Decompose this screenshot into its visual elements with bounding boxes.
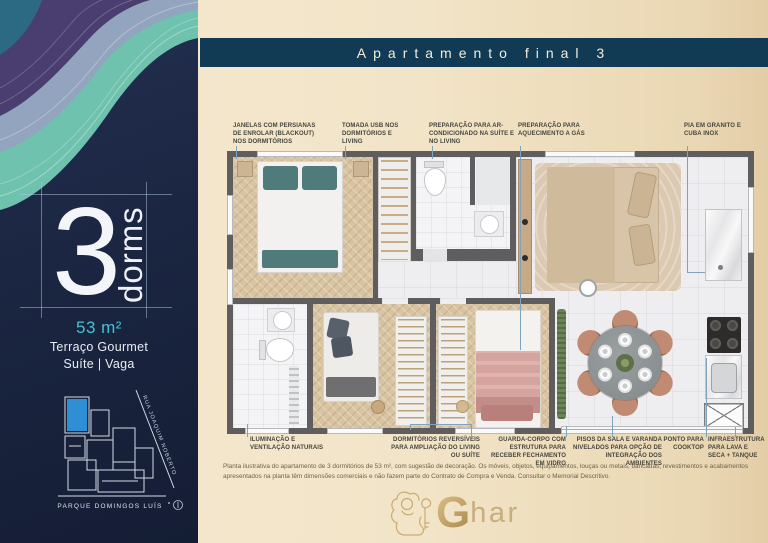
frame-line-left	[41, 182, 42, 318]
leader-line	[706, 358, 707, 437]
pillow	[263, 166, 298, 190]
leader-line	[566, 426, 567, 437]
callout-reversible-bedrooms: DORMITÓRIOS REVERSÍVEIS PARA AMPLIAÇÃO D…	[383, 437, 480, 461]
toilet-tank	[259, 340, 266, 360]
callout-usb-outlet: TOMADA USB NOS DORMITÓRIOS E LIVING	[342, 123, 406, 147]
leader-line	[410, 424, 472, 425]
leader-line	[432, 146, 433, 159]
burner	[727, 320, 738, 331]
leader-line	[520, 146, 521, 350]
logo-wordmark: har	[470, 499, 519, 528]
toilet	[424, 168, 446, 196]
leader-line	[345, 146, 346, 159]
area-label: 53 m²	[0, 318, 198, 338]
callout-laundry-infrastructure: INFRAESTRUTURA PARA LAVA E SECA + TANQUE	[708, 437, 762, 461]
window	[245, 428, 289, 434]
sink	[273, 311, 292, 330]
leader-line	[410, 424, 411, 430]
pink-blanket	[476, 351, 540, 397]
planter-hedge	[557, 309, 566, 419]
window	[257, 151, 343, 157]
brochure-page: { "header": { "title": "Apartamento fina…	[0, 0, 768, 543]
map-street-label: RUA JOAQUIM NOBERTO	[141, 395, 177, 477]
stool	[456, 400, 469, 413]
room-bathroom-2	[233, 304, 307, 428]
wardrobe	[395, 316, 427, 426]
sink-counter	[267, 308, 295, 332]
sink	[480, 215, 499, 234]
side-table	[371, 400, 385, 414]
callout-cooktop-point: PONTO PARA COOKTOP	[660, 437, 704, 453]
leader-line	[612, 416, 613, 437]
compass-icon	[168, 501, 182, 510]
shower-partition	[470, 157, 475, 205]
suite-blanket	[547, 167, 615, 283]
window	[327, 428, 383, 434]
door-opening	[423, 249, 447, 261]
feature-suite-vaga: Suíte | Vaga	[0, 357, 198, 371]
site-map: RUA JOAQUIM NOBERTO PARQUE DOMINGOS LUÍS	[38, 388, 190, 516]
kitchen-sink	[711, 363, 737, 393]
leader-line	[687, 146, 688, 272]
legal-disclaimer: Planta ilustrativa do apartamento de 3 d…	[223, 462, 760, 482]
dorms-label: dorms	[112, 203, 150, 303]
pillow	[302, 166, 337, 190]
callout-natural-light: ILUMINAÇÃO E VENTILAÇÃO NATURAIS	[250, 437, 332, 453]
lion-key-icon	[388, 487, 434, 539]
page-title: Apartamento final 3	[357, 45, 611, 61]
dorms-count: 3	[52, 200, 121, 305]
room-bedroom-3	[436, 304, 549, 428]
decor-item	[522, 219, 528, 225]
callout-gas-heating: PREPARAÇÃO PARA AQUECIMENTO A GÁS	[518, 123, 592, 139]
window	[227, 269, 233, 305]
pillow	[628, 224, 656, 267]
cooktop	[707, 317, 741, 353]
suite-bed	[547, 167, 659, 283]
leader-line	[236, 146, 237, 159]
glass-guardrail	[561, 426, 743, 434]
laundry-tank	[704, 403, 744, 428]
burner	[710, 320, 721, 331]
side-table	[579, 279, 597, 297]
window	[748, 187, 754, 253]
map-park-label: PARQUE DOMINGOS LUÍS	[57, 501, 162, 510]
leader-line	[735, 427, 736, 437]
counter-with-sink	[705, 355, 742, 399]
floor-plan	[227, 151, 754, 434]
pillow	[627, 171, 658, 219]
leader-line	[471, 424, 472, 437]
title-bar: Apartamento final 3	[200, 38, 768, 67]
nightstand	[237, 161, 253, 177]
granite-counter-sink	[705, 209, 742, 281]
decor-item	[522, 255, 528, 261]
window	[545, 151, 635, 157]
plate	[618, 379, 632, 393]
room-bedroom-1	[233, 157, 373, 298]
nightstand	[353, 161, 369, 177]
toilet-tank	[424, 161, 444, 168]
faucet	[718, 265, 723, 270]
brand-logo: G har	[388, 486, 588, 540]
blanket	[326, 377, 376, 397]
leader-line	[247, 424, 248, 437]
burner	[727, 338, 738, 349]
single-bed	[475, 310, 541, 428]
plate	[618, 333, 632, 347]
shower-area	[476, 157, 510, 205]
sink-counter	[474, 211, 504, 237]
map-highlighted-unit	[67, 399, 87, 431]
daybed-sofa	[323, 312, 379, 402]
bed-bench	[262, 250, 338, 268]
callout-ac-preparation: PREPARAÇÃO PARA AR-CONDICIONADO NA SUÍTE…	[429, 123, 515, 147]
logo-initial: G	[436, 491, 470, 535]
callout-granite-sink: PIA EM GRANITO E CUBA INOX	[684, 123, 748, 139]
room-bathroom-1	[416, 157, 510, 249]
toilet	[266, 338, 294, 362]
closet-shelves	[378, 157, 411, 263]
pillow	[481, 405, 533, 421]
callout-blackout-blinds: JANELAS COM PERSIANAS DE ENROLAR (BLACKO…	[233, 123, 321, 147]
double-bed	[257, 161, 343, 273]
pillow	[331, 336, 354, 359]
window	[455, 428, 515, 434]
interior-wall	[549, 298, 555, 428]
table-centerpiece	[616, 354, 634, 372]
shower-door	[289, 366, 299, 424]
room-bedroom-2	[313, 304, 430, 428]
window	[227, 195, 233, 235]
left-info-panel: 3 dorms 53 m² Terraço Gourmet Suíte | Va…	[0, 0, 198, 543]
burner	[710, 338, 721, 349]
leader-line	[687, 272, 705, 273]
feature-terraco: Terraço Gourmet	[0, 340, 198, 354]
